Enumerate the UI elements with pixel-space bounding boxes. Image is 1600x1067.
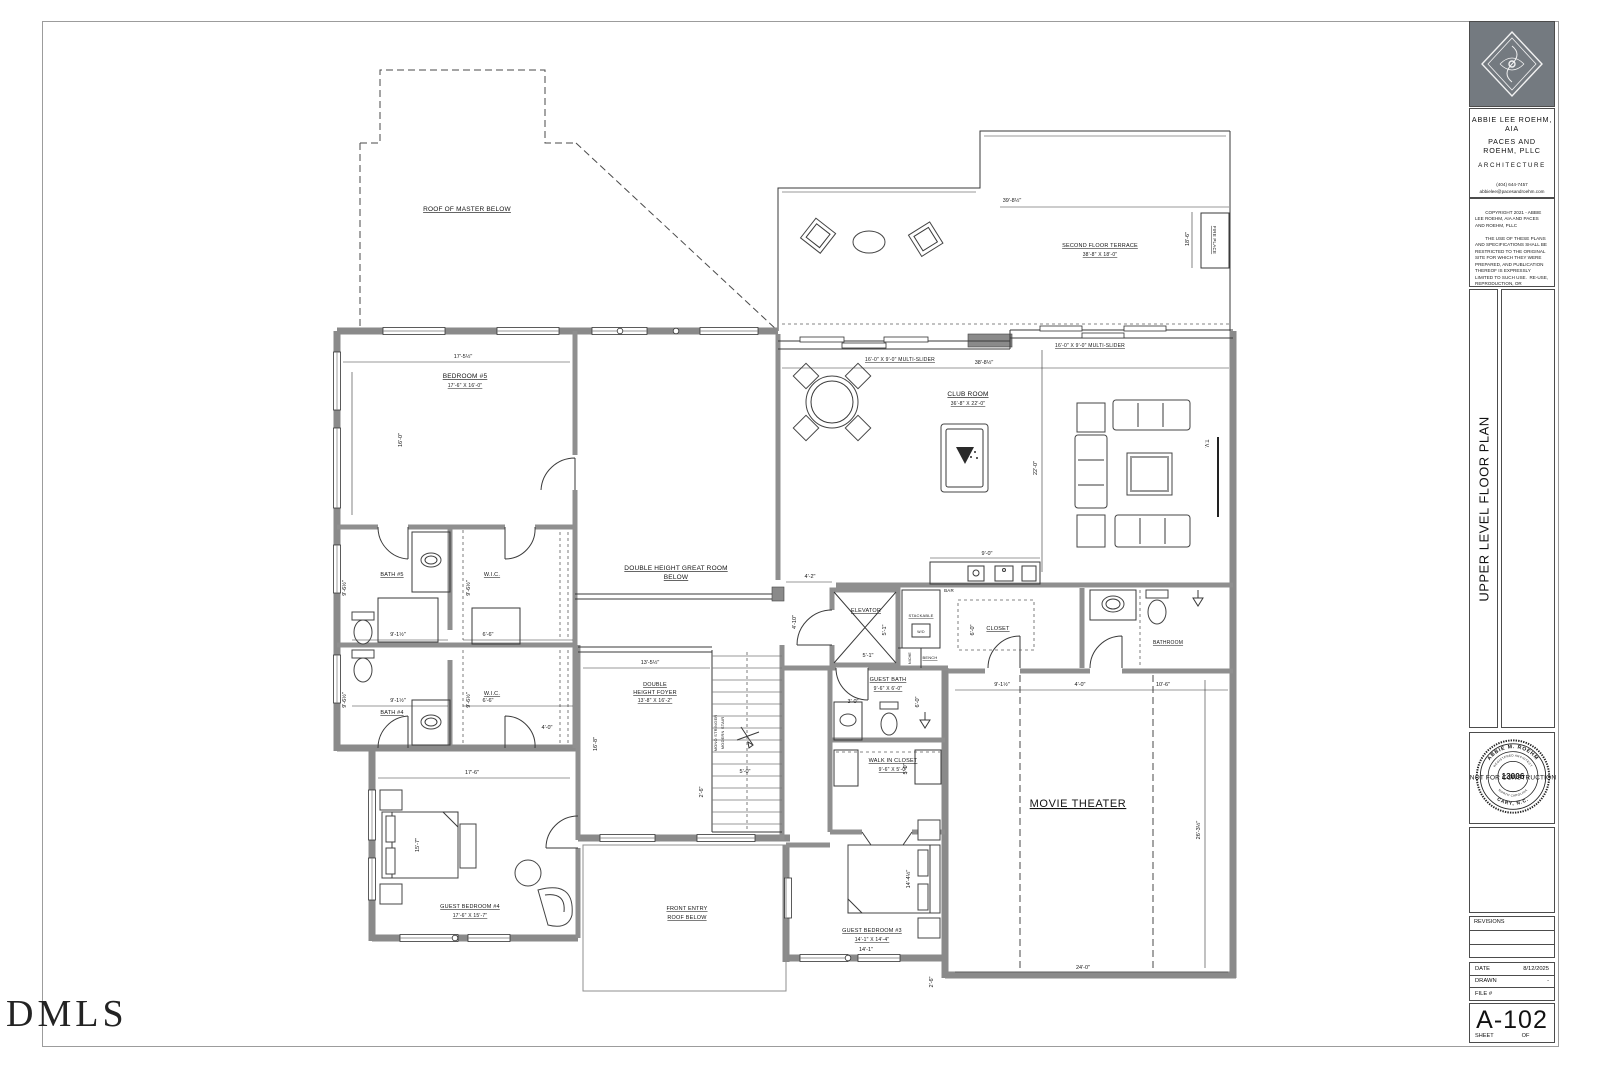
roof-outline-dashed bbox=[360, 70, 1230, 331]
firm-phone: (404) 644-7457 bbox=[1470, 182, 1554, 189]
bath4-fixtures bbox=[352, 608, 520, 745]
dim-label: 9'-6½" bbox=[341, 692, 348, 708]
dim-label: 5'-0" bbox=[740, 769, 751, 775]
drawing-sheet: ROOF OF MASTER BELOW SECOND FLOOR TERRAC… bbox=[0, 0, 1600, 1067]
firm-name-line2: PACES AND ROEHM, PLLC bbox=[1470, 137, 1554, 155]
label-wic-top: W.I.C. bbox=[484, 572, 500, 578]
sheet-number: A-102 bbox=[1470, 1006, 1554, 1035]
theater-soffit-lines bbox=[1020, 675, 1153, 970]
dim-label: 9'-0" bbox=[982, 551, 993, 557]
label-wd: W/D bbox=[917, 630, 925, 634]
date-label: DATE bbox=[1475, 966, 1490, 972]
dim-label: 15'-7" bbox=[415, 838, 421, 852]
firm-name-line1: ABBIE LEE ROEHM, AIA bbox=[1470, 115, 1554, 133]
dim-label: 14'-4½" bbox=[905, 870, 912, 889]
label-bar: BAR bbox=[944, 588, 954, 593]
not-for-construction-overlay: NOT FOR CONSTRUCTION bbox=[1470, 774, 1556, 781]
dim-label: 6'-0" bbox=[970, 624, 976, 635]
floor-plan-svg: ROOF OF MASTER BELOW SECOND FLOOR TERRAC… bbox=[0, 0, 1600, 1067]
dim-label: 18'-6" bbox=[1185, 232, 1191, 246]
terrace-furniture bbox=[801, 218, 943, 256]
dim-label: 10'-6" bbox=[1156, 682, 1170, 688]
dim-label: 13'-5½" bbox=[641, 659, 660, 666]
label-elevator: ELEVATOR bbox=[851, 608, 881, 614]
dim-label: 9'-6½" bbox=[341, 580, 348, 596]
wic-shelving bbox=[463, 530, 940, 752]
club-dining-table bbox=[793, 363, 870, 440]
label-bedroom5-dims: 17'-6" X 16'-0" bbox=[448, 383, 483, 389]
dim-label: 2'-6" bbox=[699, 786, 705, 797]
sheet-number-box: A-102 SHEET OF bbox=[1469, 1003, 1555, 1043]
doors bbox=[378, 458, 1122, 858]
svg-text:CARY, N.C.: CARY, N.C. bbox=[1496, 796, 1529, 806]
dim-label: 4'-0" bbox=[542, 725, 553, 731]
svg-text:NORTH CAROLINA: NORTH CAROLINA bbox=[1498, 788, 1529, 798]
copyright-line: COPYRIGHT 2021 - ABBIE LEE ROEHM, AIA AN… bbox=[1475, 210, 1543, 228]
drawn-label: DRAWN bbox=[1475, 978, 1497, 984]
svg-text:ABBIE M. ROEHM: ABBIE M. ROEHM bbox=[1486, 744, 1539, 762]
dim-label: 22'-0" bbox=[1033, 461, 1039, 475]
stamp-state: NORTH CAROLINA bbox=[1498, 788, 1529, 798]
label-stackable: STACKABLE bbox=[908, 613, 933, 618]
stamp-city: CARY, N.C. bbox=[1496, 796, 1529, 806]
pool-table bbox=[941, 424, 988, 492]
bathroom-fixtures bbox=[1090, 590, 1203, 665]
label-guest-bath: GUEST BATH bbox=[870, 677, 907, 683]
label-movie-theater: MOVIE THEATER bbox=[1030, 798, 1127, 810]
terrace-outline bbox=[778, 131, 1230, 331]
firm-monogram-icon bbox=[1470, 22, 1554, 106]
label-club-room: CLUB ROOM bbox=[947, 391, 988, 398]
dim-label: 5'-1" bbox=[863, 653, 874, 659]
dim-label: 5'-1" bbox=[882, 624, 888, 635]
dim-label: 14'-1" bbox=[859, 947, 873, 953]
dim-label: 24'-0" bbox=[1076, 965, 1090, 971]
label-great-room: DOUBLE HEIGHT GREAT ROOM bbox=[624, 565, 727, 572]
label-roof-master: ROOF OF MASTER BELOW bbox=[423, 206, 511, 213]
of-label: OF bbox=[1522, 1033, 1530, 1039]
dim-label: 9'-1½" bbox=[994, 681, 1010, 688]
label-terrace: SECOND FLOOR TERRACE bbox=[1062, 243, 1138, 249]
dim-label: 39'-8½" bbox=[1003, 197, 1022, 204]
label-front-entry: FRONT ENTRY bbox=[666, 906, 707, 912]
dim-label: 5'-0" bbox=[903, 763, 909, 774]
label-niche: NICHE bbox=[908, 652, 912, 664]
copyright-text: THE USE OF THESE PLANS AND SPECIFICATION… bbox=[1475, 236, 1550, 287]
bar-counter bbox=[930, 562, 1040, 584]
dim-label: 4'-0" bbox=[1075, 682, 1086, 688]
revisions-label: REVISIONS bbox=[1470, 917, 1554, 931]
label-multislider-left: 16'-0" X 9'-0" MULTI-SLIDER bbox=[865, 357, 935, 363]
date-value: 8/12/2025 bbox=[1523, 966, 1549, 972]
sheet-title-column: UPPER LEVEL FLOOR PLAN bbox=[1469, 289, 1498, 728]
bath5-fixtures bbox=[352, 532, 450, 644]
dim-label: 38'-8½" bbox=[975, 359, 994, 366]
label-foyer-3: 13'-8" X 16'-2" bbox=[638, 698, 673, 704]
sheet-label: SHEET bbox=[1475, 1033, 1494, 1039]
label-front-entry-2: ROOF BELOW bbox=[667, 915, 707, 921]
dim-label: 9'-6½" bbox=[465, 692, 472, 708]
dim-label: 3'-0" bbox=[848, 699, 859, 705]
file-label: FILE # bbox=[1475, 991, 1492, 997]
dim-label: 16'-0" bbox=[398, 433, 404, 447]
label-wic-bottom: W.I.C. bbox=[484, 691, 500, 697]
label-bench: BENCH bbox=[922, 655, 937, 660]
watermark: DMLS bbox=[6, 992, 128, 1036]
wall-marker bbox=[845, 955, 851, 961]
drawn-value: - bbox=[1547, 978, 1549, 984]
wall-marker bbox=[673, 328, 679, 334]
gb3-furniture bbox=[848, 820, 940, 938]
wall-marker bbox=[617, 328, 623, 334]
label-club-dims: 36'-8" X 22'-0" bbox=[951, 401, 986, 407]
label-bath4: BATH #4 bbox=[380, 710, 403, 716]
title-column-spacer bbox=[1501, 289, 1555, 728]
label-terrace-dims: 38'-8" X 18'-0" bbox=[1083, 252, 1118, 258]
dim-label: 2'-6" bbox=[929, 976, 935, 987]
title-block: ABBIE LEE ROEHM, AIA PACES AND ROEHM, PL… bbox=[1469, 21, 1557, 1043]
dim-label: 9'-6½" bbox=[465, 580, 472, 596]
label-multislider-right: 16'-0" X 9'-0" MULTI-SLIDER bbox=[1055, 343, 1125, 349]
label-walk-in-closet: WALK IN CLOSET bbox=[869, 758, 918, 764]
label-stair-1: MONO STRINGER bbox=[713, 715, 718, 752]
dim-label: 17'-5½" bbox=[454, 353, 473, 360]
firm-logo bbox=[1469, 21, 1555, 107]
architect-stamp-box: ABBIE M. ROEHM REGISTERED ARCHITECT NORT… bbox=[1469, 732, 1555, 824]
label-gb3: GUEST BEDROOM #3 bbox=[842, 928, 902, 934]
label-tv: T.V. bbox=[1203, 440, 1209, 449]
revisions-box: REVISIONS bbox=[1469, 916, 1555, 958]
copyright-box: COPYRIGHT 2021 - ABBIE LEE ROEHM, AIA AN… bbox=[1469, 198, 1555, 287]
notes-box bbox=[1469, 827, 1555, 913]
label-great-room-2: BELOW bbox=[664, 574, 689, 581]
label-gb4: GUEST BEDROOM #4 bbox=[440, 904, 500, 910]
revision-row bbox=[1470, 945, 1554, 958]
dim-label: 26'-3½" bbox=[1195, 821, 1202, 840]
stamp-name: ABBIE M. ROEHM bbox=[1486, 744, 1539, 762]
dim-label: 6'-6" bbox=[483, 632, 494, 638]
stair-direction-arrow bbox=[737, 727, 759, 748]
label-guest-bath-dims: 9'-6" X 6'-0" bbox=[874, 686, 903, 692]
firm-discipline: ARCHITECTURE bbox=[1470, 162, 1554, 169]
dim-label: 6'-6" bbox=[483, 698, 494, 704]
firm-name-box: ABBIE LEE ROEHM, AIA PACES AND ROEHM, PL… bbox=[1469, 108, 1555, 198]
wall-marker bbox=[452, 935, 458, 941]
dim-label: 16'-8" bbox=[593, 737, 599, 751]
label-closet: CLOSET bbox=[986, 626, 1010, 632]
dim-label: 17'-6" bbox=[465, 770, 479, 776]
dim-label: 9'-1½" bbox=[390, 631, 406, 638]
label-bath5: BATH #5 bbox=[380, 572, 403, 578]
label-bathroom: BATHROOM bbox=[1153, 640, 1183, 646]
revision-row bbox=[1470, 931, 1554, 945]
label-stair-2: MODERN STAIR bbox=[720, 717, 725, 750]
label-foyer-2: HEIGHT FOYER bbox=[633, 690, 677, 696]
dim-label: 6'-0" bbox=[915, 696, 921, 707]
architect-stamp: ABBIE M. ROEHM REGISTERED ARCHITECT NORT… bbox=[1470, 733, 1556, 823]
drawing-info-box: DATE 8/12/2025 DRAWN - FILE # bbox=[1469, 962, 1555, 1001]
dim-label: 9'-1½" bbox=[390, 697, 406, 704]
label-foyer-1: DOUBLE bbox=[643, 682, 667, 688]
svg-text:REGISTERED ARCHITECT: REGISTERED ARCHITECT bbox=[1493, 753, 1534, 767]
label-gb4-dims: 17'-6" X 15'-7" bbox=[453, 913, 488, 919]
label-fireplace: FIRE PLACE bbox=[1212, 226, 1217, 254]
club-sofa-set bbox=[1075, 400, 1218, 547]
open-to-below-edges bbox=[575, 594, 772, 652]
label-gb3-dims: 14'-1" X 14'-4" bbox=[855, 937, 890, 943]
label-bedroom5: BEDROOM #5 bbox=[443, 373, 488, 380]
dim-label: 4'-2" bbox=[805, 574, 816, 580]
sheet-title: UPPER LEVEL FLOOR PLAN bbox=[1476, 416, 1491, 601]
firm-email: abbielee@pacesandroehm.com bbox=[1470, 189, 1554, 196]
dim-label: 4'-10" bbox=[792, 615, 798, 629]
stamp-registered: REGISTERED ARCHITECT bbox=[1493, 753, 1534, 767]
